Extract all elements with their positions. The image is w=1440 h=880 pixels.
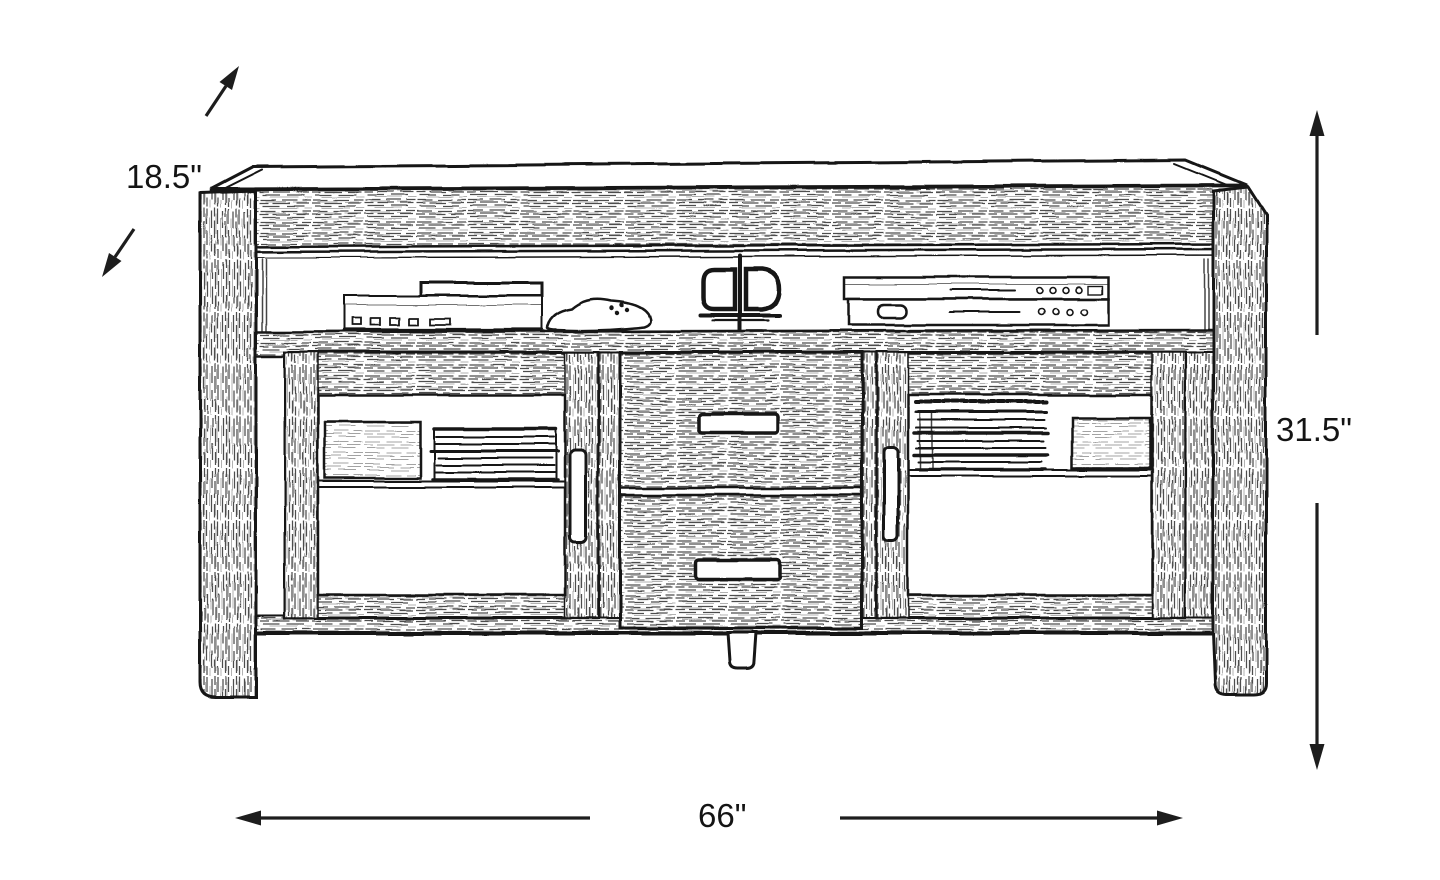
left-shelf-box	[325, 422, 420, 478]
left-door-handle	[570, 450, 586, 543]
drawer-bank	[620, 352, 862, 628]
media-shelf	[256, 255, 1213, 332]
right-shelf-box	[1072, 418, 1150, 468]
height-arrow-down-head	[1310, 744, 1325, 770]
av-receiver-stack-icon	[845, 277, 1108, 325]
top-apron	[209, 186, 1249, 258]
depth-arrow-down-head	[102, 253, 122, 277]
depth-arrow-up-icon	[206, 86, 226, 116]
right-glass-door	[877, 352, 1185, 618]
left-glass-door	[285, 352, 598, 618]
right-door-handle	[884, 447, 898, 540]
width-dimension-label: 66"	[698, 797, 746, 834]
height-dimension-label: 31.5"	[1276, 411, 1352, 448]
height-dimension: 31.5"	[1276, 110, 1352, 770]
depth-arrow-up-head	[220, 66, 240, 90]
dimension-diagram: 18.5" 31.5" 66"	[0, 0, 1440, 880]
width-dimension: 66"	[235, 797, 1183, 834]
post-far-right	[1185, 352, 1213, 618]
right-leg	[1213, 187, 1266, 695]
left-leg	[200, 191, 256, 697]
height-arrow-up-head	[1310, 110, 1325, 136]
cabinet-top	[211, 160, 1247, 189]
depth-arrow-down-icon	[115, 229, 134, 257]
bottom-drawer-handle	[696, 560, 780, 580]
furniture-sketch	[200, 160, 1266, 697]
center-foot	[728, 632, 756, 668]
width-arrow-right-head	[1157, 811, 1183, 826]
top-drawer-handle	[700, 414, 778, 433]
post-left-center	[598, 352, 622, 618]
width-arrow-left-head	[235, 811, 261, 826]
post-right-center	[862, 352, 877, 618]
diagram-canvas: 18.5" 31.5" 66"	[0, 0, 1440, 880]
depth-dimension-label: 18.5"	[126, 158, 202, 195]
